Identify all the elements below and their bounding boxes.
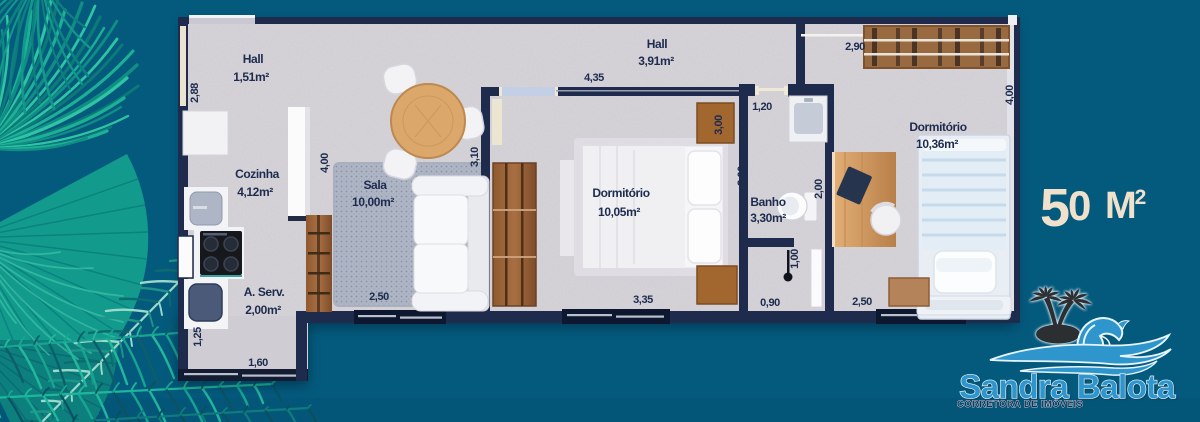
svg-text:1,51m²: 1,51m² [233, 70, 269, 84]
svg-text:0,90: 0,90 [760, 297, 780, 309]
svg-text:Dormitório: Dormitório [592, 186, 649, 200]
svg-text:Cozinha: Cozinha [235, 167, 280, 181]
svg-text:Dormitório: Dormitório [909, 120, 966, 134]
svg-text:10,05m²: 10,05m² [598, 205, 640, 219]
svg-text:3,91m²: 3,91m² [638, 54, 674, 68]
svg-text:2,50: 2,50 [852, 296, 872, 308]
svg-text:2,00: 2,00 [813, 179, 825, 199]
svg-text:Sala: Sala [363, 178, 387, 192]
svg-text:A. Serv.: A. Serv. [244, 285, 285, 299]
svg-text:Hall: Hall [243, 52, 263, 66]
svg-text:4,12m²: 4,12m² [237, 185, 273, 199]
svg-text:3,30m²: 3,30m² [750, 211, 786, 225]
svg-text:2,90: 2,90 [845, 41, 865, 53]
svg-text:3,00: 3,00 [736, 166, 748, 186]
svg-text:3,00: 3,00 [713, 115, 725, 135]
svg-text:1,60: 1,60 [248, 357, 268, 369]
svg-text:10,00m²: 10,00m² [352, 195, 394, 209]
svg-text:1,20: 1,20 [752, 101, 772, 113]
svg-text:1,25: 1,25 [192, 327, 204, 347]
svg-text:4,00: 4,00 [1004, 85, 1016, 105]
svg-text:Banho: Banho [750, 195, 785, 209]
svg-text:CORRETORA DE IMÓVEIS: CORRETORA DE IMÓVEIS [957, 398, 1083, 409]
svg-text:4,35: 4,35 [584, 72, 604, 84]
svg-text:2,50: 2,50 [369, 291, 389, 303]
svg-text:4,00: 4,00 [319, 153, 331, 173]
svg-text:10,36m²: 10,36m² [916, 137, 958, 151]
svg-text:1,00: 1,00 [789, 249, 801, 269]
svg-text:3,35: 3,35 [633, 294, 653, 306]
svg-text:Hall: Hall [647, 37, 667, 51]
svg-text:2,88: 2,88 [189, 83, 201, 103]
svg-text:3,10: 3,10 [469, 147, 481, 167]
svg-text:2,00m²: 2,00m² [245, 303, 281, 317]
